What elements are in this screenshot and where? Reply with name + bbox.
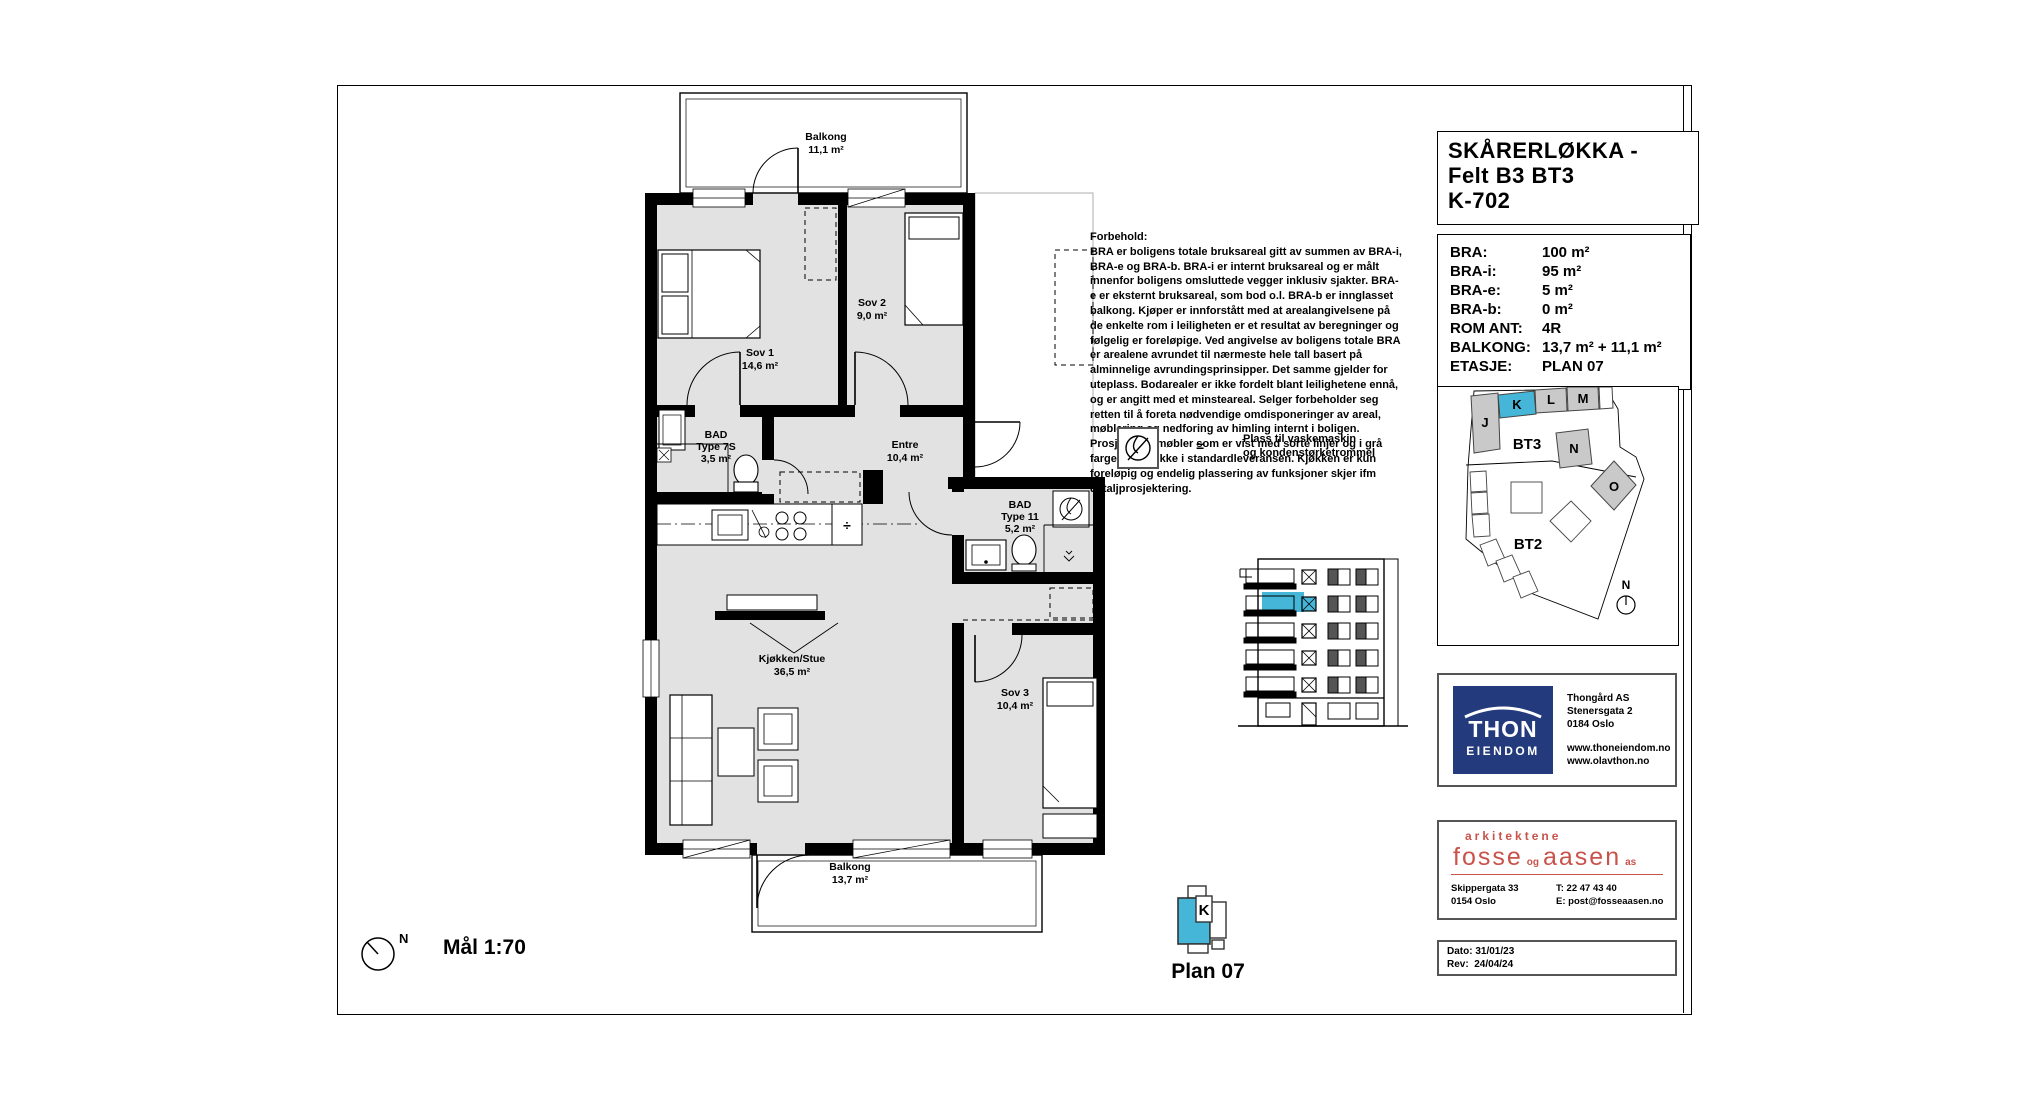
- site-north-arrow: N: [1617, 578, 1635, 614]
- highlighted-unit: [1262, 592, 1304, 612]
- info-label: BRA:: [1450, 243, 1542, 262]
- info-value: 100 m²: [1542, 243, 1590, 262]
- site-label-bt2: BT2: [1514, 536, 1542, 553]
- site-label-n: N: [1569, 441, 1578, 456]
- site-plan-box: J K L M N O BT3 BT2 N: [1437, 386, 1679, 646]
- date-value: 31/01/23: [1475, 946, 1514, 957]
- forbehold-title: Forbehold:: [1090, 230, 1404, 245]
- washer-icon: [1053, 491, 1089, 527]
- room-label: Sov 3: [1001, 687, 1029, 699]
- thon-logo: THON EIENDOM: [1453, 686, 1553, 774]
- architect-logo-og: og: [1527, 857, 1539, 868]
- building-elevation: [1238, 553, 1408, 803]
- date-row: Dato: 31/01/23: [1447, 945, 1675, 958]
- north-label: N: [399, 931, 408, 946]
- unit-number: K-702: [1448, 188, 1688, 213]
- room-label: Balkong: [805, 131, 846, 143]
- room-area: 14,6 m²: [742, 360, 779, 372]
- architect-logo: fosse og aasen as: [1451, 843, 1663, 875]
- tv-icon: [727, 595, 817, 610]
- room-area: 5,2 m²: [1005, 523, 1036, 535]
- site-label-m: M: [1578, 391, 1589, 406]
- info-row: BRA-e:5 m²: [1450, 281, 1690, 300]
- washer-legend-icon: [1116, 426, 1160, 470]
- info-value: 5 m²: [1542, 281, 1573, 300]
- plan-level-label: Plan 07: [1168, 960, 1248, 984]
- thon-wordmark-sub: EIENDOM: [1466, 744, 1540, 758]
- room-area: 11,1 m²: [808, 144, 844, 156]
- room-label: Sov 1: [746, 347, 774, 359]
- architect-logo-aasen: aasen: [1543, 843, 1621, 872]
- svg-text:N: N: [1622, 578, 1631, 592]
- architect-phone: T: 22 47 43 40: [1556, 882, 1663, 895]
- bt2-buildings: [1470, 471, 1591, 598]
- site-label-l: L: [1547, 392, 1555, 407]
- architect-city: 0154 Oslo: [1451, 895, 1556, 908]
- room-label: Sov 2: [858, 297, 886, 309]
- architect-street: Skippergata 33: [1451, 882, 1556, 895]
- architect-email: E: post@fosseaasen.no: [1556, 895, 1663, 908]
- room-area: 9,0 m²: [857, 310, 888, 322]
- developer-street: Stenersgata 2: [1567, 705, 1671, 718]
- bedside-table: [1043, 814, 1097, 838]
- developer-web1: www.thoneiendom.no: [1567, 742, 1671, 755]
- scale-label: Mål 1:70: [443, 936, 526, 960]
- info-row: ETASJE:PLAN 07: [1450, 357, 1690, 376]
- room-area: 3,5 m²: [701, 453, 732, 465]
- architect-logo-fosse: fosse: [1453, 843, 1523, 872]
- stairwell-area: [975, 193, 1093, 483]
- info-value: 95 m²: [1542, 262, 1581, 281]
- project-title-line1: SKÅRERLØKKA -: [1448, 138, 1688, 163]
- info-row: BRA-i:95 m²: [1450, 262, 1690, 281]
- room-area: 10,4 m²: [887, 452, 924, 464]
- date-block: Dato: 31/01/23 Rev: 24/04/24: [1437, 940, 1677, 976]
- info-row: BRA:100 m²: [1450, 243, 1690, 262]
- room-label: BAD: [705, 429, 728, 441]
- room-area: 36,5 m²: [774, 666, 811, 678]
- k-marker-label: K: [1199, 902, 1210, 919]
- sink-icon: [712, 510, 748, 540]
- date-label: Dato:: [1447, 946, 1473, 957]
- developer-web2: www.olavthon.no: [1567, 755, 1671, 768]
- floor-plan: Balkong 11,1 m² Balkong 13,7 m²: [600, 80, 1160, 960]
- architect-tagline: arkitektene: [1465, 829, 1675, 843]
- unit-position-marker: K: [1176, 884, 1230, 956]
- info-value: 0 m²: [1542, 300, 1573, 319]
- bed-sov1: [658, 250, 760, 338]
- room-label: Entre: [892, 439, 919, 451]
- architect-contact: Skippergata 33 0154 Oslo T: 22 47 43 40 …: [1451, 882, 1675, 908]
- info-row: ROM ANT:4R: [1450, 319, 1690, 338]
- site-label-o: O: [1609, 479, 1619, 494]
- bed-sov2: [905, 213, 963, 325]
- info-row: BRA-b:0 m²: [1450, 300, 1690, 319]
- info-value: 13,7 m² + 11,1 m²: [1542, 338, 1662, 357]
- developer-company: Thongård AS: [1567, 692, 1671, 705]
- architect-block: arkitektene fosse og aasen as Skippergat…: [1437, 820, 1677, 920]
- info-label: BRA-e:: [1450, 281, 1542, 300]
- info-label: BRA-b:: [1450, 300, 1542, 319]
- rev-value: 24/04/24: [1474, 959, 1513, 970]
- developer-block: THON EIENDOM Thongård AS Stenersgata 2 0…: [1437, 673, 1677, 787]
- legend-equals: =: [1196, 438, 1204, 454]
- info-row: BALKONG:13,7 m² + 11,1 m²: [1450, 338, 1690, 357]
- area-info-table: BRA:100 m² BRA-i:95 m² BRA-e:5 m² BRA-b:…: [1437, 234, 1691, 390]
- toilet-icon: [1012, 535, 1036, 565]
- coffee-table: [718, 728, 754, 776]
- room-area: 13,7 m²: [832, 874, 869, 886]
- developer-address: Thongård AS Stenersgata 2 0184 Oslo www.…: [1567, 692, 1671, 768]
- info-label: ROM ANT:: [1450, 319, 1542, 338]
- info-label: BALKONG:: [1450, 338, 1542, 357]
- room-type: Type 11: [1001, 511, 1039, 523]
- svg-text:÷: ÷: [843, 517, 851, 533]
- thon-wordmark: THON: [1468, 719, 1537, 739]
- title-block: SKÅRERLØKKA - Felt B3 BT3 K-702: [1437, 131, 1699, 225]
- legend-line1: Plass til vaskemaskin: [1243, 432, 1375, 446]
- sofa: [670, 695, 712, 825]
- room-label: Balkong: [829, 861, 870, 873]
- legend-line2: og kondenstørketrommel: [1243, 446, 1375, 460]
- room-area: 10,4 m²: [997, 700, 1034, 712]
- site-plan: J K L M N O BT3 BT2 N: [1438, 387, 1674, 641]
- site-label-bt3: BT3: [1513, 436, 1541, 453]
- rev-label: Rev:: [1447, 959, 1469, 970]
- info-label: BRA-i:: [1450, 262, 1542, 281]
- balcony-bottom: Balkong 13,7 m²: [752, 855, 1042, 932]
- rev-row: Rev: 24/04/24: [1447, 958, 1675, 971]
- bed-sov3: [1043, 678, 1097, 838]
- tv-bench: [715, 611, 825, 620]
- legend-text: Plass til vaskemaskin og kondenstørketro…: [1243, 432, 1375, 460]
- info-label: ETASJE:: [1450, 357, 1542, 376]
- site-label-j: J: [1481, 415, 1488, 430]
- architect-logo-as: as: [1625, 857, 1636, 868]
- info-value: 4R: [1542, 319, 1561, 338]
- north-arrow: N: [355, 925, 417, 980]
- developer-city: 0184 Oslo: [1567, 718, 1671, 731]
- room-label: Kjøkken/Stue: [759, 653, 826, 665]
- info-value: PLAN 07: [1542, 357, 1604, 376]
- toilet-icon: [734, 455, 758, 485]
- room-label: BAD: [1009, 499, 1032, 511]
- site-label-k: K: [1512, 397, 1522, 412]
- room-type: Type 7S: [696, 441, 736, 453]
- project-title-line2: Felt B3 BT3: [1448, 163, 1688, 188]
- balcony-top: Balkong 11,1 m²: [680, 93, 967, 193]
